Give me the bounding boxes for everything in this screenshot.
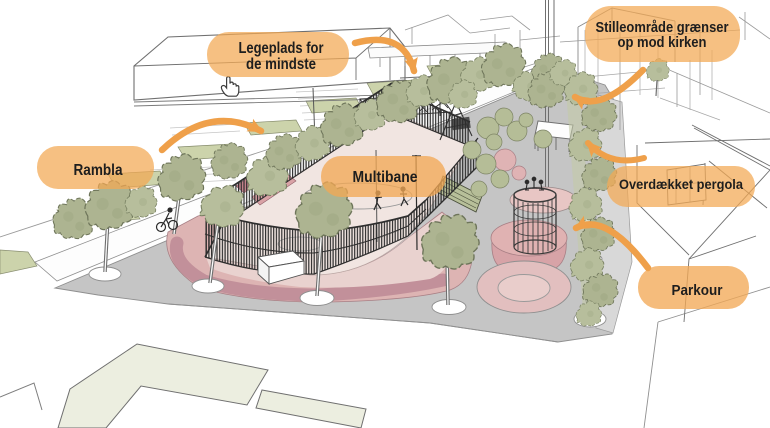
svg-text:de mindste: de mindste bbox=[246, 56, 316, 73]
svg-text:Parkour: Parkour bbox=[672, 283, 723, 299]
svg-text:Rambla: Rambla bbox=[74, 162, 123, 179]
svg-text:Overdækket pergola: Overdækket pergola bbox=[619, 176, 743, 192]
svg-text:Multibane: Multibane bbox=[353, 169, 418, 186]
svg-text:op mod kirken: op mod kirken bbox=[618, 34, 707, 51]
svg-text:Legeplads for: Legeplads for bbox=[239, 40, 324, 57]
